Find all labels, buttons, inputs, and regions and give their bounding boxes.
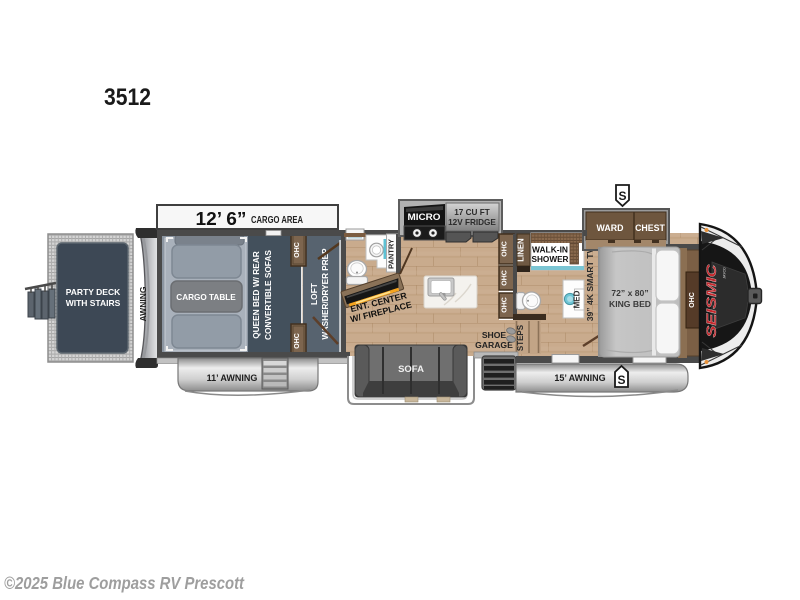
svg-text:SEISMIC: SEISMIC <box>704 264 719 337</box>
svg-text:QUEEN BED W/ REAR: QUEEN BED W/ REAR <box>251 251 261 339</box>
svg-text:WALK-IN: WALK-IN <box>532 245 568 255</box>
svg-text:MICRO: MICRO <box>408 212 441 223</box>
svg-text:OHC: OHC <box>294 333 301 349</box>
svg-text:SHOWER: SHOWER <box>532 254 570 264</box>
svg-text:39” 4K SMART TV: 39” 4K SMART TV <box>585 247 595 321</box>
svg-text:11’ AWNING: 11’ AWNING <box>207 373 258 383</box>
svg-text:12V FRIDGE: 12V FRIDGE <box>448 218 496 227</box>
svg-text:MED: MED <box>573 290 582 308</box>
svg-text:CHEST: CHEST <box>635 223 665 233</box>
svg-text:PANTRY: PANTRY <box>387 239 396 269</box>
svg-text:CONVERTIBLE SOFAS: CONVERTIBLE SOFAS <box>263 250 273 340</box>
svg-text:72” x 80”: 72” x 80” <box>611 288 648 298</box>
svg-text:SOFA: SOFA <box>398 364 424 375</box>
svg-text:PARTY DECK: PARTY DECK <box>66 287 121 297</box>
svg-text:S: S <box>618 189 626 203</box>
svg-text:OHC: OHC <box>294 242 301 258</box>
svg-text:GARAGE: GARAGE <box>475 340 513 350</box>
svg-text:AWNING: AWNING <box>138 286 148 321</box>
svg-text:WARD: WARD <box>597 223 624 233</box>
svg-text:©2025 Blue Compass RV Prescott: ©2025 Blue Compass RV Prescott <box>4 573 245 593</box>
svg-text:12’ 6”: 12’ 6” <box>196 208 247 229</box>
svg-text:OHC: OHC <box>502 241 509 257</box>
svg-text:17 CU FT: 17 CU FT <box>454 208 490 217</box>
svg-text:LOFT: LOFT <box>309 282 319 305</box>
svg-text:SHOE: SHOE <box>482 330 507 340</box>
svg-text:STEPS: STEPS <box>516 324 525 351</box>
svg-text:CARGO TABLE: CARGO TABLE <box>176 293 236 302</box>
svg-text:OHC: OHC <box>502 270 509 286</box>
svg-text:OHC: OHC <box>689 292 696 308</box>
svg-text:OHC: OHC <box>502 297 509 313</box>
svg-text:15’ AWNING: 15’ AWNING <box>554 373 605 383</box>
svg-text:3512: 3512 <box>104 84 151 111</box>
svg-text:S: S <box>617 373 625 387</box>
svg-text:JAYCO: JAYCO <box>723 267 727 279</box>
svg-text:LINEN: LINEN <box>517 238 526 262</box>
svg-text:WITH STAIRS: WITH STAIRS <box>66 298 121 308</box>
svg-text:CARGO AREA: CARGO AREA <box>251 214 303 226</box>
svg-text:KING BED: KING BED <box>609 299 651 309</box>
